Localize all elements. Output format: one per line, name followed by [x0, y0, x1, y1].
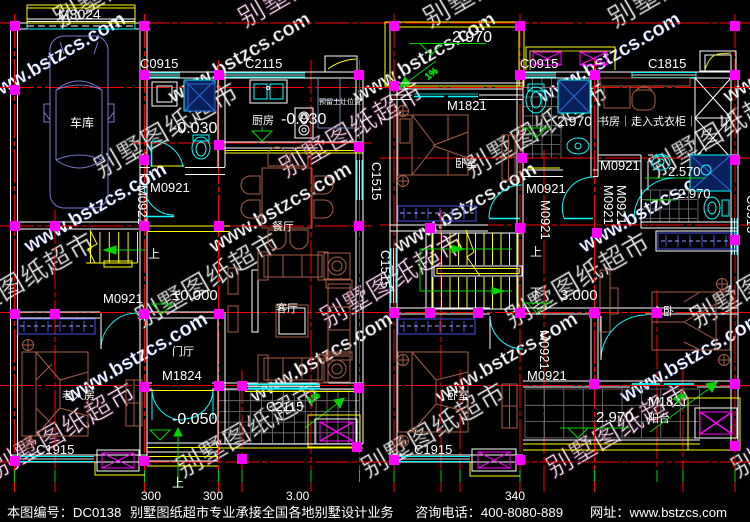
svg-text:±0.000: ±0.000	[172, 287, 218, 304]
svg-text:卧室: 卧室	[455, 156, 477, 170]
svg-text:车库: 车库	[70, 115, 94, 130]
svg-text:M0921: M0921	[537, 330, 552, 370]
svg-text:C1515: C1515	[369, 162, 384, 200]
svg-text:C0915: C0915	[744, 195, 750, 233]
svg-text:C1815: C1815	[648, 56, 686, 71]
svg-text:上: 上	[172, 476, 184, 490]
svg-text:300: 300	[141, 489, 161, 503]
svg-text:上: 上	[530, 245, 542, 259]
svg-text:2.970: 2.970	[557, 113, 592, 129]
svg-text:M0921: M0921	[600, 158, 640, 173]
svg-text:老人房: 老人房	[62, 389, 95, 402]
svg-text:C2115: C2115	[245, 56, 282, 71]
svg-text:M0921: M0921	[526, 181, 566, 196]
svg-text:M0921: M0921	[150, 180, 190, 195]
svg-text:C1915: C1915	[414, 442, 452, 457]
svg-text:M0921: M0921	[103, 291, 143, 306]
svg-text:-0.030: -0.030	[172, 120, 217, 137]
svg-text:M0921: M0921	[135, 185, 150, 225]
svg-text:卧室: 卧室	[447, 388, 469, 402]
svg-text:阳台: 阳台	[648, 411, 670, 425]
svg-text:C1515: C1515	[378, 250, 393, 288]
svg-text:咨询电话：400-8080-889: 咨询电话：400-8080-889	[415, 505, 563, 520]
svg-text:C0915: C0915	[140, 56, 178, 71]
svg-text:2.570: 2.570	[668, 164, 701, 179]
svg-text:厨房: 厨房	[252, 114, 274, 127]
svg-text:M1821: M1821	[447, 98, 487, 113]
svg-text:客厅: 客厅	[276, 301, 298, 315]
svg-text:M0921: M0921	[601, 185, 616, 225]
svg-text:下: 下	[530, 286, 542, 300]
svg-text:本图编号：DC0138: 本图编号：DC0138	[7, 505, 121, 520]
svg-text:-0.050: -0.050	[172, 411, 217, 428]
svg-text:门厅: 门厅	[172, 344, 194, 358]
svg-text:3.00: 3.00	[286, 489, 310, 503]
svg-text:3.000: 3.000	[560, 287, 598, 304]
svg-text:网址：www.bstzcs.com: 网址：www.bstzcs.com	[590, 505, 727, 520]
svg-text:餐厅: 餐厅	[272, 219, 294, 233]
svg-text:别墅图纸超市专业承接全国各地别墅设计业务: 别墅图纸超市专业承接全国各地别墅设计业务	[130, 504, 394, 520]
svg-text:300: 300	[203, 489, 223, 503]
svg-text:-0.030: -0.030	[281, 111, 326, 128]
svg-text:书房｜走入式衣柜｜: 书房｜走入式衣柜｜	[598, 114, 697, 128]
svg-text:预留土灶位置: 预留土灶位置	[319, 97, 361, 106]
svg-text:M0921: M0921	[614, 185, 629, 225]
svg-text:C2115: C2115	[266, 399, 303, 414]
svg-text:M0921: M0921	[538, 200, 553, 240]
svg-text:上: 上	[148, 247, 160, 261]
svg-text:C0915: C0915	[520, 56, 558, 71]
svg-text:340: 340	[505, 489, 525, 503]
svg-text:M1824: M1824	[162, 368, 202, 383]
svg-text:C1915: C1915	[36, 442, 74, 457]
svg-text:2.970: 2.970	[678, 186, 711, 201]
svg-text:M3024: M3024	[58, 6, 101, 22]
svg-text:2.970: 2.970	[596, 409, 634, 426]
